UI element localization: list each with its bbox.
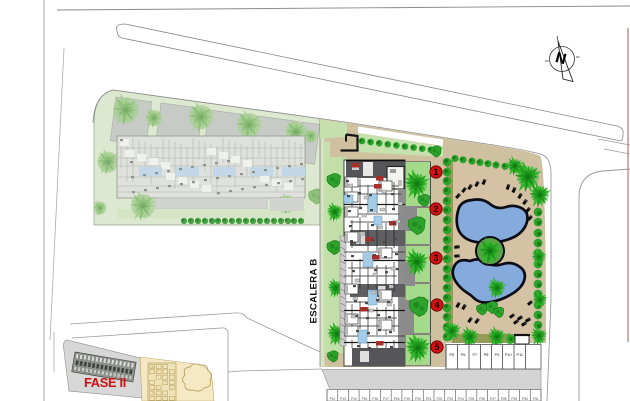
svg-text:P21: P21 [426,397,432,401]
svg-text:P12: P12 [330,397,336,401]
svg-text:P27: P27 [490,397,496,401]
svg-text:P9: P9 [495,353,500,357]
svg-text:3: 3 [434,253,439,263]
svg-text:P20: P20 [415,397,421,401]
svg-text:P19: P19 [404,397,410,401]
svg-text:P22: P22 [437,397,443,401]
svg-text:P26: P26 [479,397,485,401]
svg-text:P28: P28 [501,397,507,401]
svg-text:P11: P11 [517,353,523,357]
svg-text:FASE II: FASE II [84,375,126,390]
svg-text:P8: P8 [484,353,489,357]
svg-text:4: 4 [435,300,440,310]
svg-text:P14: P14 [351,397,357,401]
svg-text:P25: P25 [469,397,475,401]
svg-text:P23: P23 [447,397,453,401]
svg-text:P10: P10 [505,353,512,357]
svg-text:P6: P6 [461,353,466,357]
svg-text:1: 1 [434,167,439,177]
svg-text:P31: P31 [533,397,539,401]
svg-text:P24: P24 [458,397,464,401]
svg-text:2: 2 [434,204,439,214]
svg-text:P16: P16 [372,397,378,401]
svg-text:P7: P7 [472,353,477,357]
svg-text:5: 5 [435,342,440,352]
svg-text:P17: P17 [383,397,389,401]
svg-text:P15: P15 [362,397,368,401]
svg-text:P29: P29 [511,397,517,401]
svg-text:ESCALERA B: ESCALERA B [309,258,320,323]
svg-text:P18: P18 [394,397,400,401]
svg-text:P13: P13 [340,397,346,401]
svg-text:P30: P30 [522,397,528,401]
svg-text:P5: P5 [449,353,454,357]
